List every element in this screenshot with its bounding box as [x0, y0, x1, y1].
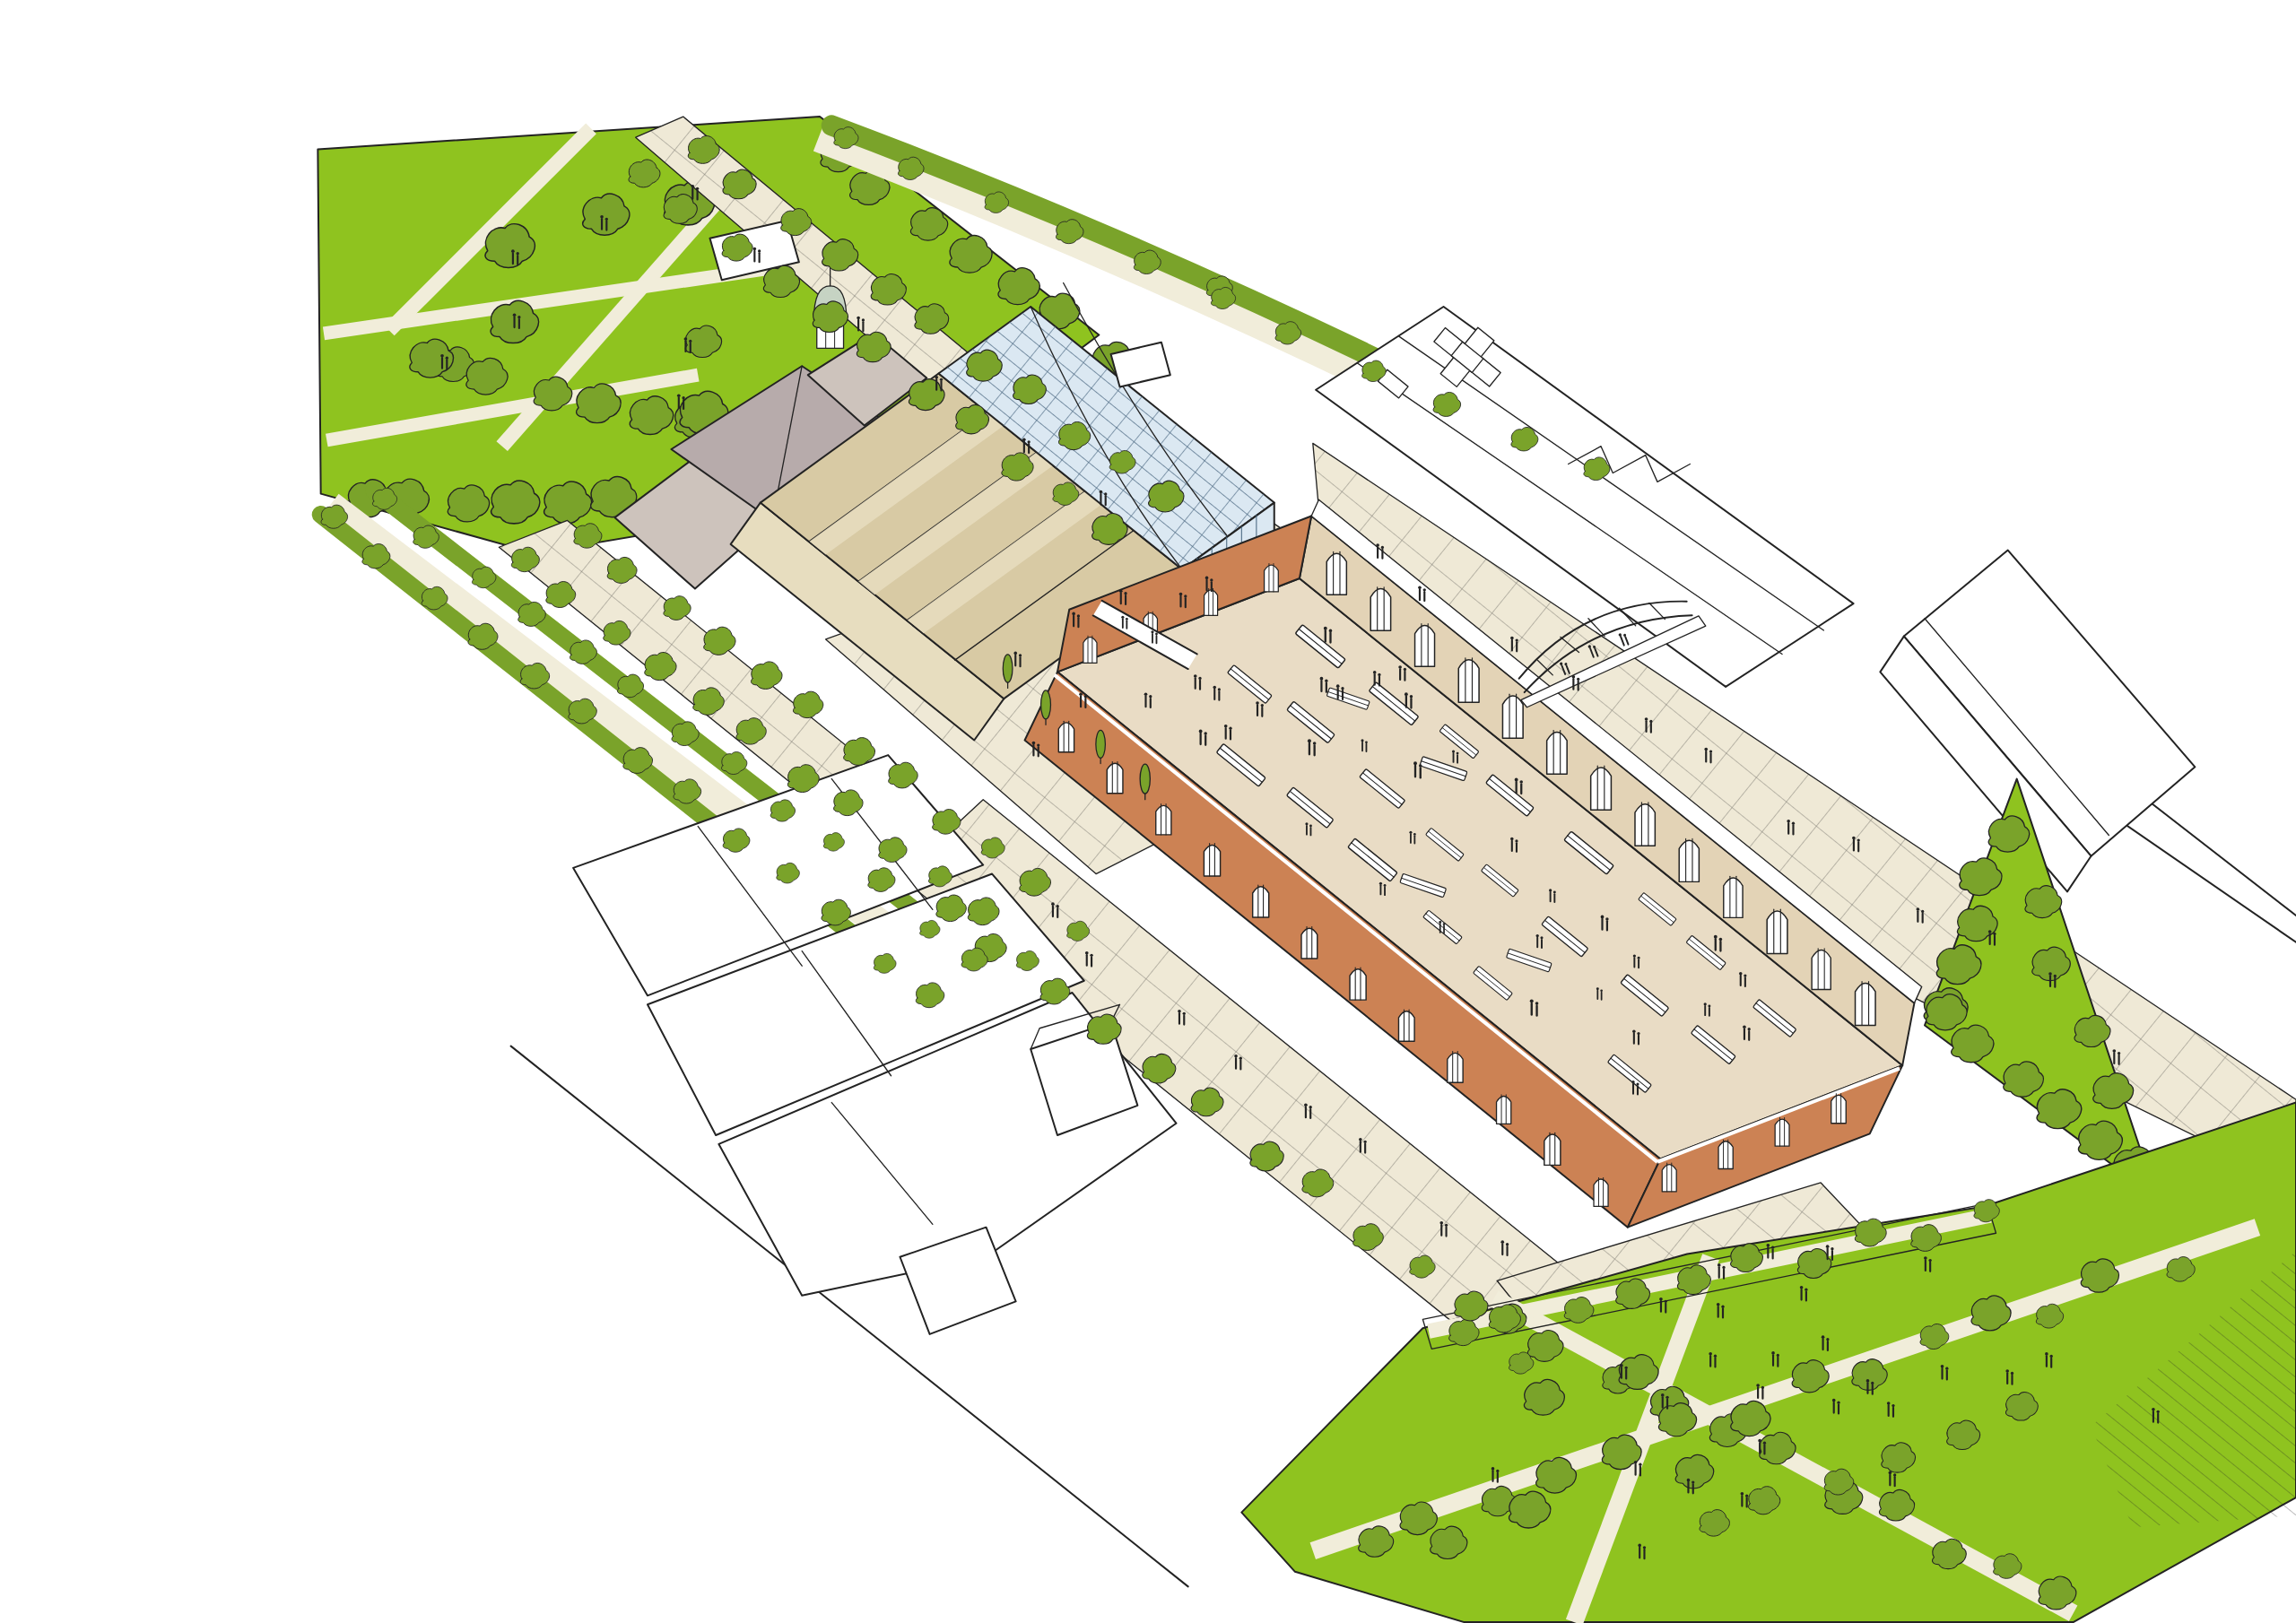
- arch-window: [1326, 551, 1346, 595]
- arch-window: [1350, 968, 1366, 1000]
- arch-window: [1594, 1177, 1608, 1206]
- arch-window: [1107, 761, 1123, 793]
- arch-window: [1370, 587, 1390, 631]
- arch-window: [1458, 658, 1479, 702]
- arch-window: [1301, 927, 1318, 959]
- arch-window: [1812, 949, 1831, 990]
- arch-window: [1662, 1163, 1676, 1192]
- arch-window: [1253, 885, 1269, 917]
- arch-window: [1635, 803, 1655, 846]
- arch-window: [1856, 982, 1876, 1026]
- arch-window: [1679, 838, 1699, 881]
- arch-window: [1724, 876, 1743, 917]
- arch-window: [1767, 909, 1787, 953]
- arch-window: [1415, 624, 1435, 667]
- arch-window: [1058, 721, 1074, 752]
- arch-window: [1265, 564, 1279, 592]
- arch-window: [1204, 844, 1220, 876]
- arch-window: [1398, 1010, 1414, 1041]
- arch-window: [1775, 1117, 1789, 1146]
- masterplan-illustration: [0, 0, 2296, 1623]
- masterplan-page: [0, 0, 2296, 1623]
- arch-window: [1591, 766, 1612, 810]
- arch-window: [1547, 731, 1567, 775]
- arch-window: [1448, 1052, 1463, 1083]
- arch-window: [1205, 588, 1218, 615]
- arch-window: [1156, 804, 1171, 835]
- arch-window: [1502, 694, 1523, 738]
- arch-window: [1718, 1140, 1733, 1168]
- arch-window: [1831, 1094, 1847, 1124]
- arch-window: [1544, 1133, 1561, 1165]
- arch-window: [1083, 636, 1097, 663]
- arch-window: [1497, 1095, 1511, 1124]
